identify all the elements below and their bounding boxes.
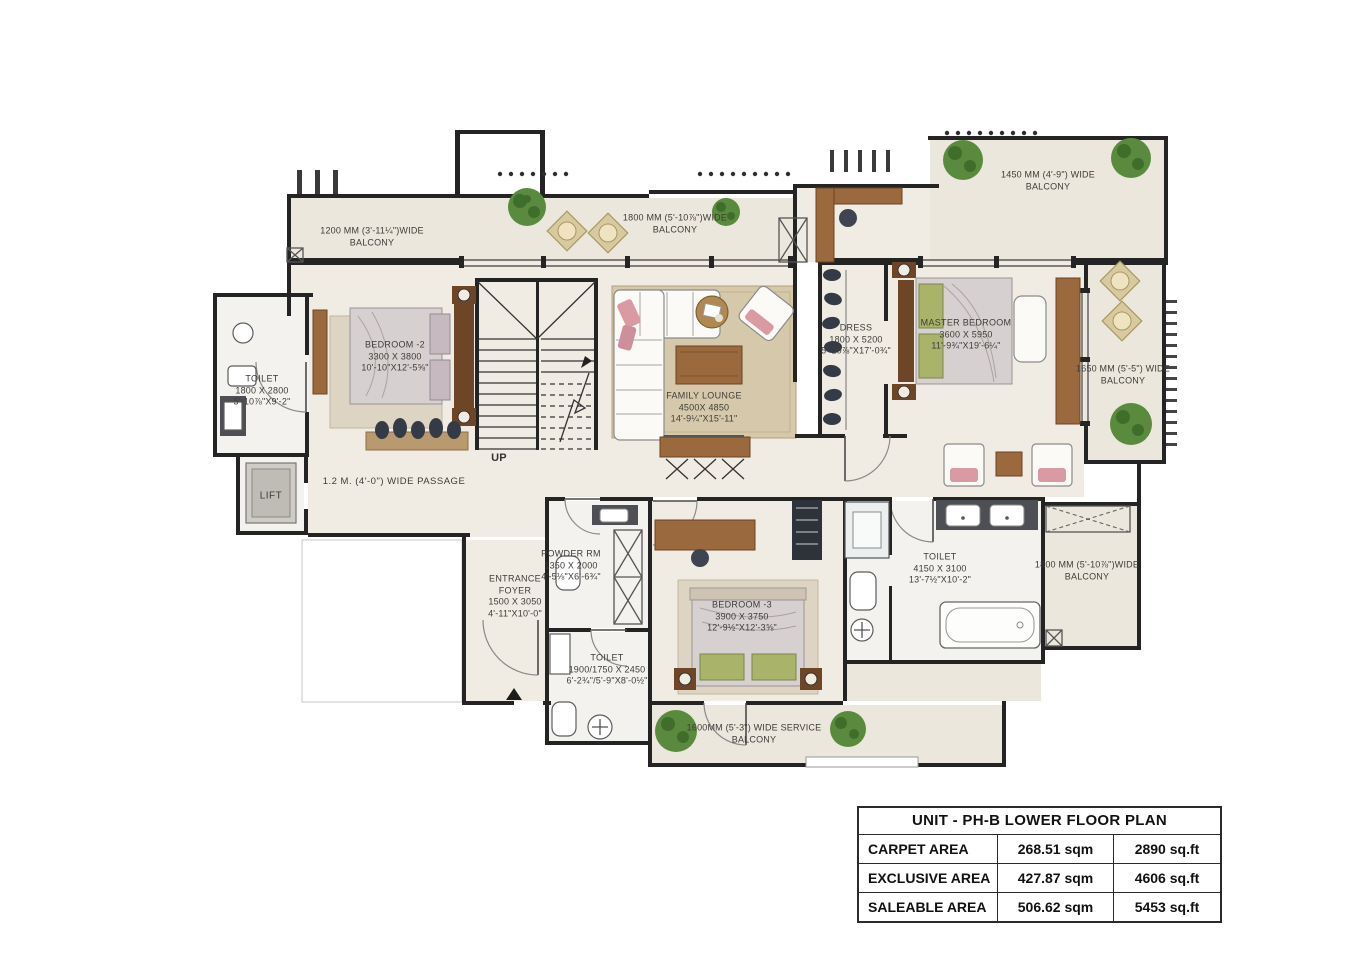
area-label-cell: EXCLUSIVE AREA [859, 864, 998, 892]
area-sqft-cell: 4606 sq.ft [1114, 864, 1220, 892]
balcony-label-top-right: 1450 MM (4'-9") WIDE BALCONY [1001, 169, 1095, 192]
shower-icon [588, 715, 612, 739]
wardrobe-icon [313, 310, 327, 394]
room-label-family-lounge: FAMILY LOUNGE 4500X 4850 14'-9¼"X15'-11" [666, 390, 742, 425]
wc-icon [552, 702, 576, 736]
table-row: SALEABLE AREA 506.62 sqm 5453 sq.ft [859, 893, 1220, 921]
table-row: EXCLUSIVE AREA 427.87 sqm 4606 sq.ft [859, 864, 1220, 893]
room-label-toilet-bedroom3: TOILET 1900/1750 X 2450 6'-2¾"/5'-9"X8'-… [566, 652, 647, 687]
balcony-label-service: 1600MM (5'-3") WIDE SERVICE BALCONY [687, 722, 822, 745]
room-label-toilet-master: TOILET 4150 X 3100 13'-7½"X10'-2" [909, 551, 971, 586]
nightstand-icon [1014, 296, 1046, 362]
balcony-label-right-lower: 1800 MM (5'-10⅞")WIDE BALCONY [1035, 559, 1139, 582]
wardrobe-icon [1056, 278, 1080, 424]
stairs-up-label: UP [491, 451, 507, 465]
bench-icon [366, 418, 468, 450]
passage-label: 1.2 M. (4'-0") WIDE PASSAGE [323, 476, 466, 488]
office-chair-icon [839, 209, 857, 227]
room-label-master-bedroom: MASTER BEDROOM 3600 X 5950 11'-9¾"X19'-6… [921, 317, 1012, 352]
area-sqft-cell: 2890 sq.ft [1114, 835, 1220, 863]
armchair-icon [944, 444, 984, 486]
wardrobe-icon [792, 500, 822, 560]
shower-icon [851, 619, 873, 641]
floor-plan: BEDROOM -2 3300 X 3800 10'-10"X12'-5⅝" T… [0, 0, 1360, 970]
shower-tray-icon [845, 502, 889, 558]
area-table: UNIT - PH-B LOWER FLOOR PLAN CARPET AREA… [857, 806, 1222, 923]
area-sqft-cell: 5453 sq.ft [1114, 893, 1220, 921]
bathtub-icon [940, 602, 1040, 648]
armchair-icon [1032, 444, 1072, 486]
room-label-bedroom2: BEDROOM -2 3300 X 3800 10'-10"X12'-5⅝" [361, 339, 428, 374]
area-label-cell: SALEABLE AREA [859, 893, 998, 921]
area-table-title: UNIT - PH-B LOWER FLOOR PLAN [859, 808, 1220, 835]
room-label-powder-room: POWDER RM 1350 X 2000 4'-5⅛"X6'-6¾" [541, 548, 601, 583]
balcony-label-top-center: 1800 MM (5'-10⅞")WIDE BALCONY [623, 212, 727, 235]
office-chair-icon [691, 549, 709, 567]
vanity-icon [936, 500, 1038, 530]
round-table-icon [696, 296, 728, 328]
area-sqm-cell: 427.87 sqm [998, 864, 1114, 892]
area-label-cell: CARPET AREA [859, 835, 998, 863]
table-row: CARPET AREA 268.51 sqm 2890 sq.ft [859, 835, 1220, 864]
room-label-lift: LIFT [260, 490, 283, 503]
area-sqm-cell: 506.62 sqm [998, 893, 1114, 921]
sink-icon [233, 323, 253, 343]
room-label-toilet-bedroom2: TOILET 1800 X 2800 5'-10⅞"X9'-2" [234, 373, 291, 408]
open-void [302, 540, 462, 702]
balcony-step [806, 757, 918, 767]
wc-icon [850, 572, 876, 610]
room-label-entrance-foyer: ENTRANCE FOYER 1500 X 3050 4'-11"X10'-0" [488, 574, 542, 621]
room-label-dress: DRESS 1800 X 5200 5'-10⅞"X17'-0¾" [821, 322, 891, 357]
room-label-bedroom3: BEDROOM -3 3900 X 3750 12'-9½"X12'-3⅝" [707, 599, 777, 634]
side-table-icon [996, 452, 1022, 476]
desk-icon [655, 520, 755, 550]
balcony-label-right: 1650 MM (5'-5") WIDE BALCONY [1076, 363, 1170, 386]
sink-icon [600, 509, 628, 522]
area-sqm-cell: 268.51 sqm [998, 835, 1114, 863]
balcony-label-top-left: 1200 MM (3'-11¼")WIDE BALCONY [320, 225, 423, 248]
